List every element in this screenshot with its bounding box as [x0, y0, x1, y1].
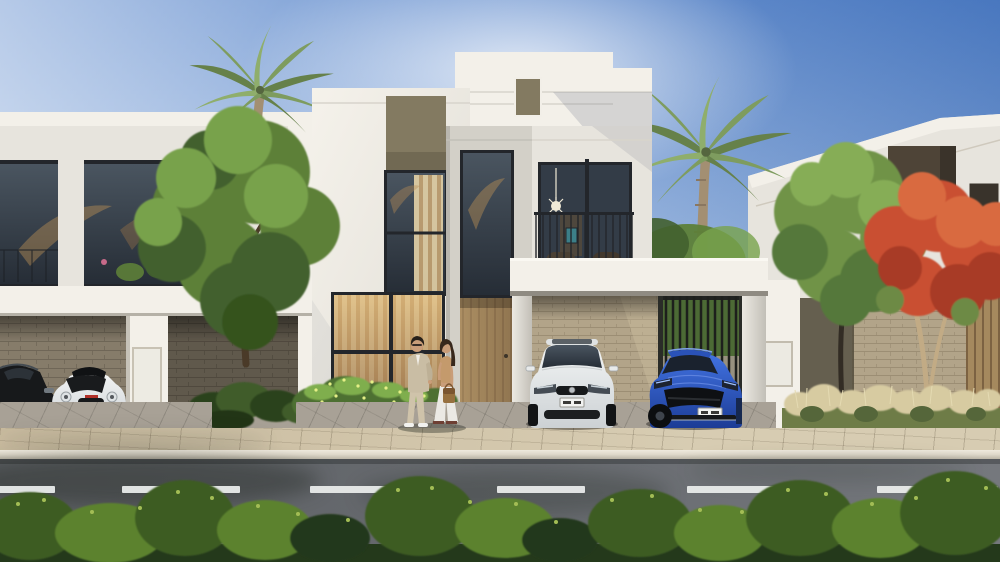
- balcony-flower: [101, 259, 107, 265]
- stair-window-glass: [463, 153, 511, 295]
- couple: [392, 332, 476, 436]
- woman-arm: [450, 364, 453, 386]
- tree-canopy: [134, 106, 340, 350]
- roof-glass: [552, 339, 592, 344]
- windshield: [542, 345, 602, 368]
- car-side-shade: [736, 398, 742, 424]
- front-wheel: [606, 404, 616, 426]
- panel-shade: [386, 152, 446, 172]
- door-top-shadow: [460, 298, 514, 308]
- headlight: [44, 388, 54, 393]
- sunglasses: [412, 344, 422, 346]
- man-trousers: [407, 391, 425, 424]
- foreground-hedge: [0, 488, 1000, 562]
- side-mirror: [609, 366, 618, 371]
- window-mullion-pier: [58, 160, 84, 288]
- scene-villa-render: [0, 0, 1000, 562]
- man: [404, 336, 433, 427]
- sidewalk-shadow: [0, 432, 270, 452]
- woman-sandal: [446, 421, 457, 424]
- woman-sandal: [433, 421, 444, 424]
- carport-roof-slab: [510, 258, 768, 296]
- white-car: [524, 338, 620, 430]
- red-accent: [85, 395, 98, 398]
- green-tree-left: [128, 90, 343, 390]
- man-hand: [428, 380, 432, 384]
- blue-car: [644, 348, 746, 430]
- side-mirror: [526, 366, 535, 371]
- man-shoe: [404, 423, 414, 427]
- emblem: [569, 387, 575, 393]
- ornamental-grass-bed: [782, 376, 1000, 432]
- woman-top: [440, 356, 452, 383]
- roof-recessed-window: [515, 78, 541, 116]
- handbag-flap: [443, 388, 455, 394]
- lower-intake: [544, 410, 600, 419]
- door-handle: [504, 354, 508, 358]
- roof-underside-shadow: [510, 291, 768, 296]
- front-wheel: [528, 404, 538, 426]
- man-shoe: [418, 423, 428, 427]
- roof-top-highlight: [510, 258, 768, 261]
- woman: [433, 339, 458, 424]
